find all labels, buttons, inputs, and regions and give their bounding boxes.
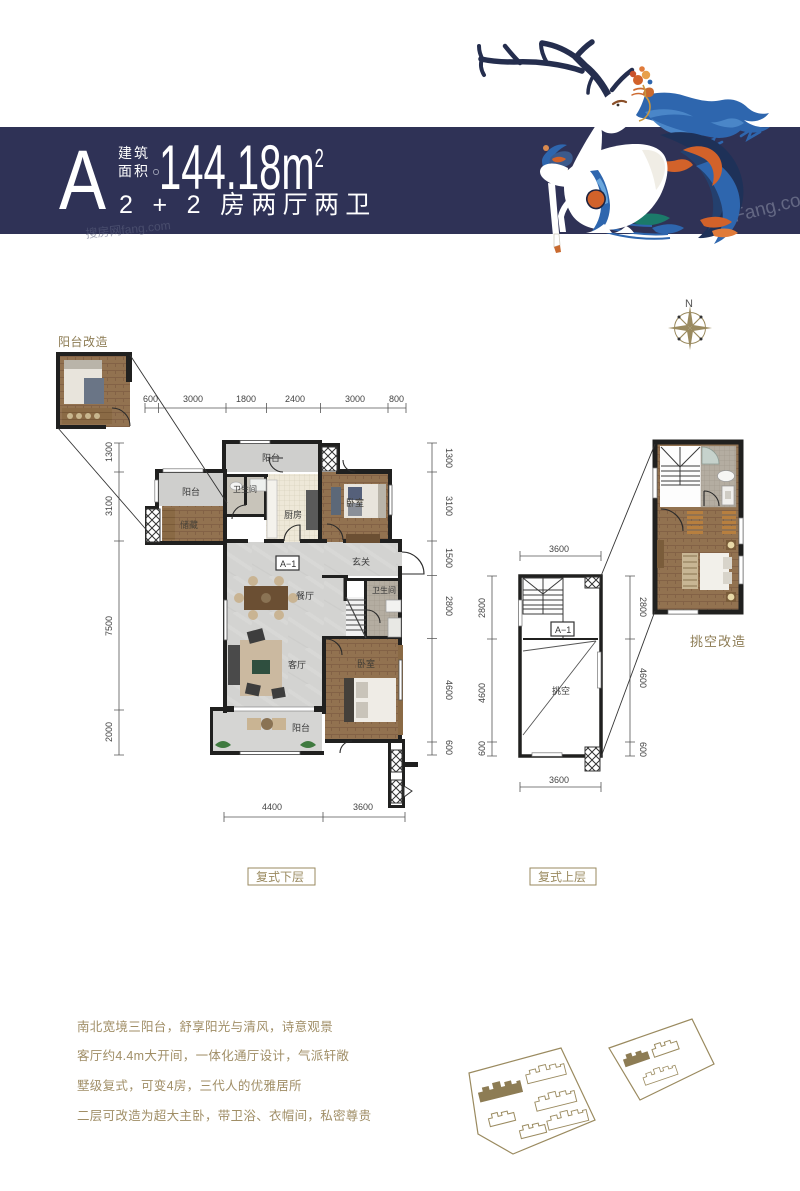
svg-text:3100: 3100 [444,496,454,516]
svg-text:600: 600 [444,740,454,755]
svg-text:2400: 2400 [285,394,305,404]
svg-text:客厅: 客厅 [288,659,306,670]
svg-text:玄关: 玄关 [352,556,370,567]
svg-text:餐厅: 餐厅 [296,590,314,601]
svg-text:3600: 3600 [549,775,569,785]
svg-text:4400: 4400 [262,802,282,812]
svg-text:1500: 1500 [444,548,454,568]
svg-text:1300: 1300 [444,448,454,468]
svg-text:4600: 4600 [477,683,487,703]
svg-text:二层可改造为超大主卧，带卫浴、衣帽间，私密尊贵: 二层可改造为超大主卧，带卫浴、衣帽间，私密尊贵 [77,1108,371,1123]
svg-text:A−1: A−1 [280,559,296,569]
svg-text:1800: 1800 [236,394,256,404]
svg-text:阳台: 阳台 [292,722,310,733]
svg-text:3000: 3000 [183,394,203,404]
svg-text:厨房: 厨房 [284,509,302,520]
svg-text:600: 600 [477,741,487,756]
svg-text:3600: 3600 [353,802,373,812]
svg-text:卫生间: 卫生间 [372,585,396,595]
svg-text:600: 600 [143,394,158,404]
svg-text:2800: 2800 [477,598,487,618]
svg-text:阳台: 阳台 [262,452,280,463]
svg-text:2000: 2000 [104,722,114,742]
svg-text:搜房网fang.com: 搜房网fang.com [85,217,171,241]
svg-text:储藏: 储藏 [180,519,198,530]
svg-text:挑空: 挑空 [552,685,570,696]
svg-text:墅级复式，可变4房，三代人的优雅居所: 墅级复式，可变4房，三代人的优雅居所 [77,1078,302,1093]
svg-text:3000: 3000 [345,394,365,404]
svg-text:卧室: 卧室 [346,497,364,508]
svg-text:600: 600 [638,742,648,757]
svg-text:7500: 7500 [104,616,114,636]
svg-text:4600: 4600 [444,680,454,700]
svg-text:挑空改造: 挑空改造 [690,634,746,649]
svg-text:复式上层: 复式上层 [538,870,586,884]
svg-text:1300: 1300 [104,442,114,462]
svg-text:3600: 3600 [549,544,569,554]
svg-text:阳台: 阳台 [182,486,200,497]
svg-text:2800: 2800 [638,597,648,617]
svg-text:阳台改造: 阳台改造 [58,334,108,349]
svg-text:3100: 3100 [104,496,114,516]
svg-text:A−1: A−1 [555,625,571,635]
svg-text:800: 800 [389,394,404,404]
svg-text:南北宽境三阳台，舒享阳光与清风，诗意观景: 南北宽境三阳台，舒享阳光与清风，诗意观景 [77,1019,333,1034]
svg-text:卧室: 卧室 [357,658,375,669]
svg-text:客厅约4.4m大开间，一体化通厅设计，气派轩敞: 客厅约4.4m大开间，一体化通厅设计，气派轩敞 [77,1048,349,1063]
svg-text:N: N [685,298,693,310]
svg-text:2800: 2800 [444,596,454,616]
svg-text:复式下层: 复式下层 [256,870,304,884]
svg-text:卫生间: 卫生间 [233,484,257,494]
svg-text:4600: 4600 [638,668,648,688]
